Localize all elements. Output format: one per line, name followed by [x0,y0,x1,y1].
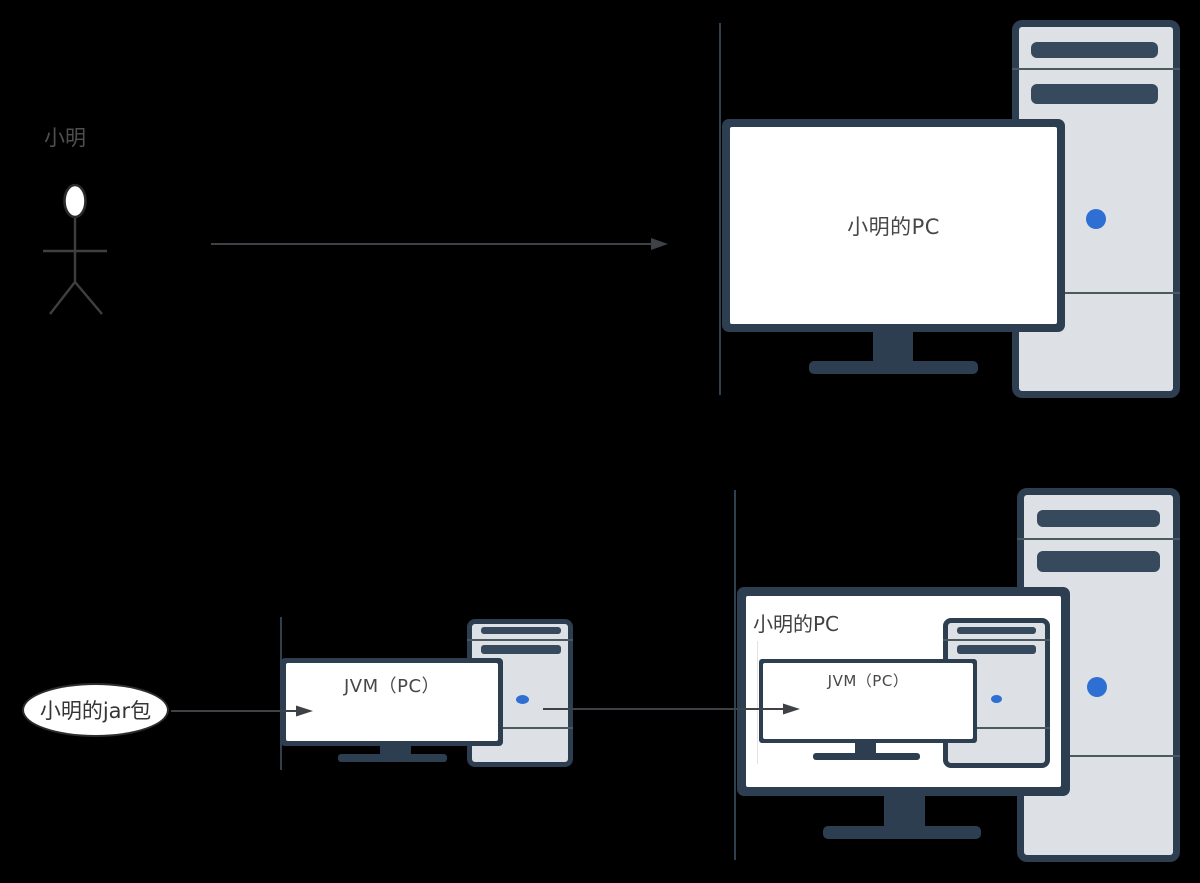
section-line-bottom [734,490,736,860]
stick-figure-icon [35,180,117,325]
section-line-top [719,23,721,395]
drive-slot [1037,551,1160,572]
power-button-icon [1086,209,1106,229]
drive-slot [1031,84,1158,104]
drive-slot [957,645,1036,654]
monitor-icon: 小明的PC JVM（PC） [737,587,1070,796]
monitor-base [338,754,447,762]
tower-divider [1012,68,1180,70]
monitor-screen: 小明的PC [730,127,1057,324]
monitor-stand [873,332,913,362]
host-pc-label: 小明的PC [753,608,839,637]
monitor-icon: 小明的PC [722,119,1065,332]
monitor-base [813,753,920,760]
arrow-actor-to-pc-icon [205,234,675,254]
drive-slot [481,645,561,654]
jar-label: 小明的jar包 [40,695,151,725]
monitor-stand [884,796,925,827]
monitor-base [823,826,981,839]
power-button-icon [1087,677,1107,697]
actor-label: 小明 [44,122,86,152]
monitor-base [809,361,978,374]
tower-divider [1017,538,1180,540]
drive-slot [957,627,1036,634]
diagram-canvas: 小明 小明的PC 小明的jar包 [0,0,1200,883]
drive-slot [1031,42,1158,58]
monitor-screen: 小明的PC JVM（PC） [746,596,1061,787]
tower-divider [943,639,1050,641]
arrow-jar-to-jvm-icon [166,701,318,721]
jar-ellipse: 小明的jar包 [22,683,169,737]
pc-screen-label: 小明的PC [847,211,940,241]
jvm-screen-label: JVM（PC） [344,672,440,698]
nested-jvm-screen-label: JVM（PC） [828,670,909,691]
power-button-icon [516,695,529,704]
power-button-icon [991,695,1002,703]
tower-divider [467,639,573,641]
arrow-jvm-to-hostpc-icon [538,699,808,719]
drive-slot [1037,510,1160,527]
drive-slot [481,627,561,634]
